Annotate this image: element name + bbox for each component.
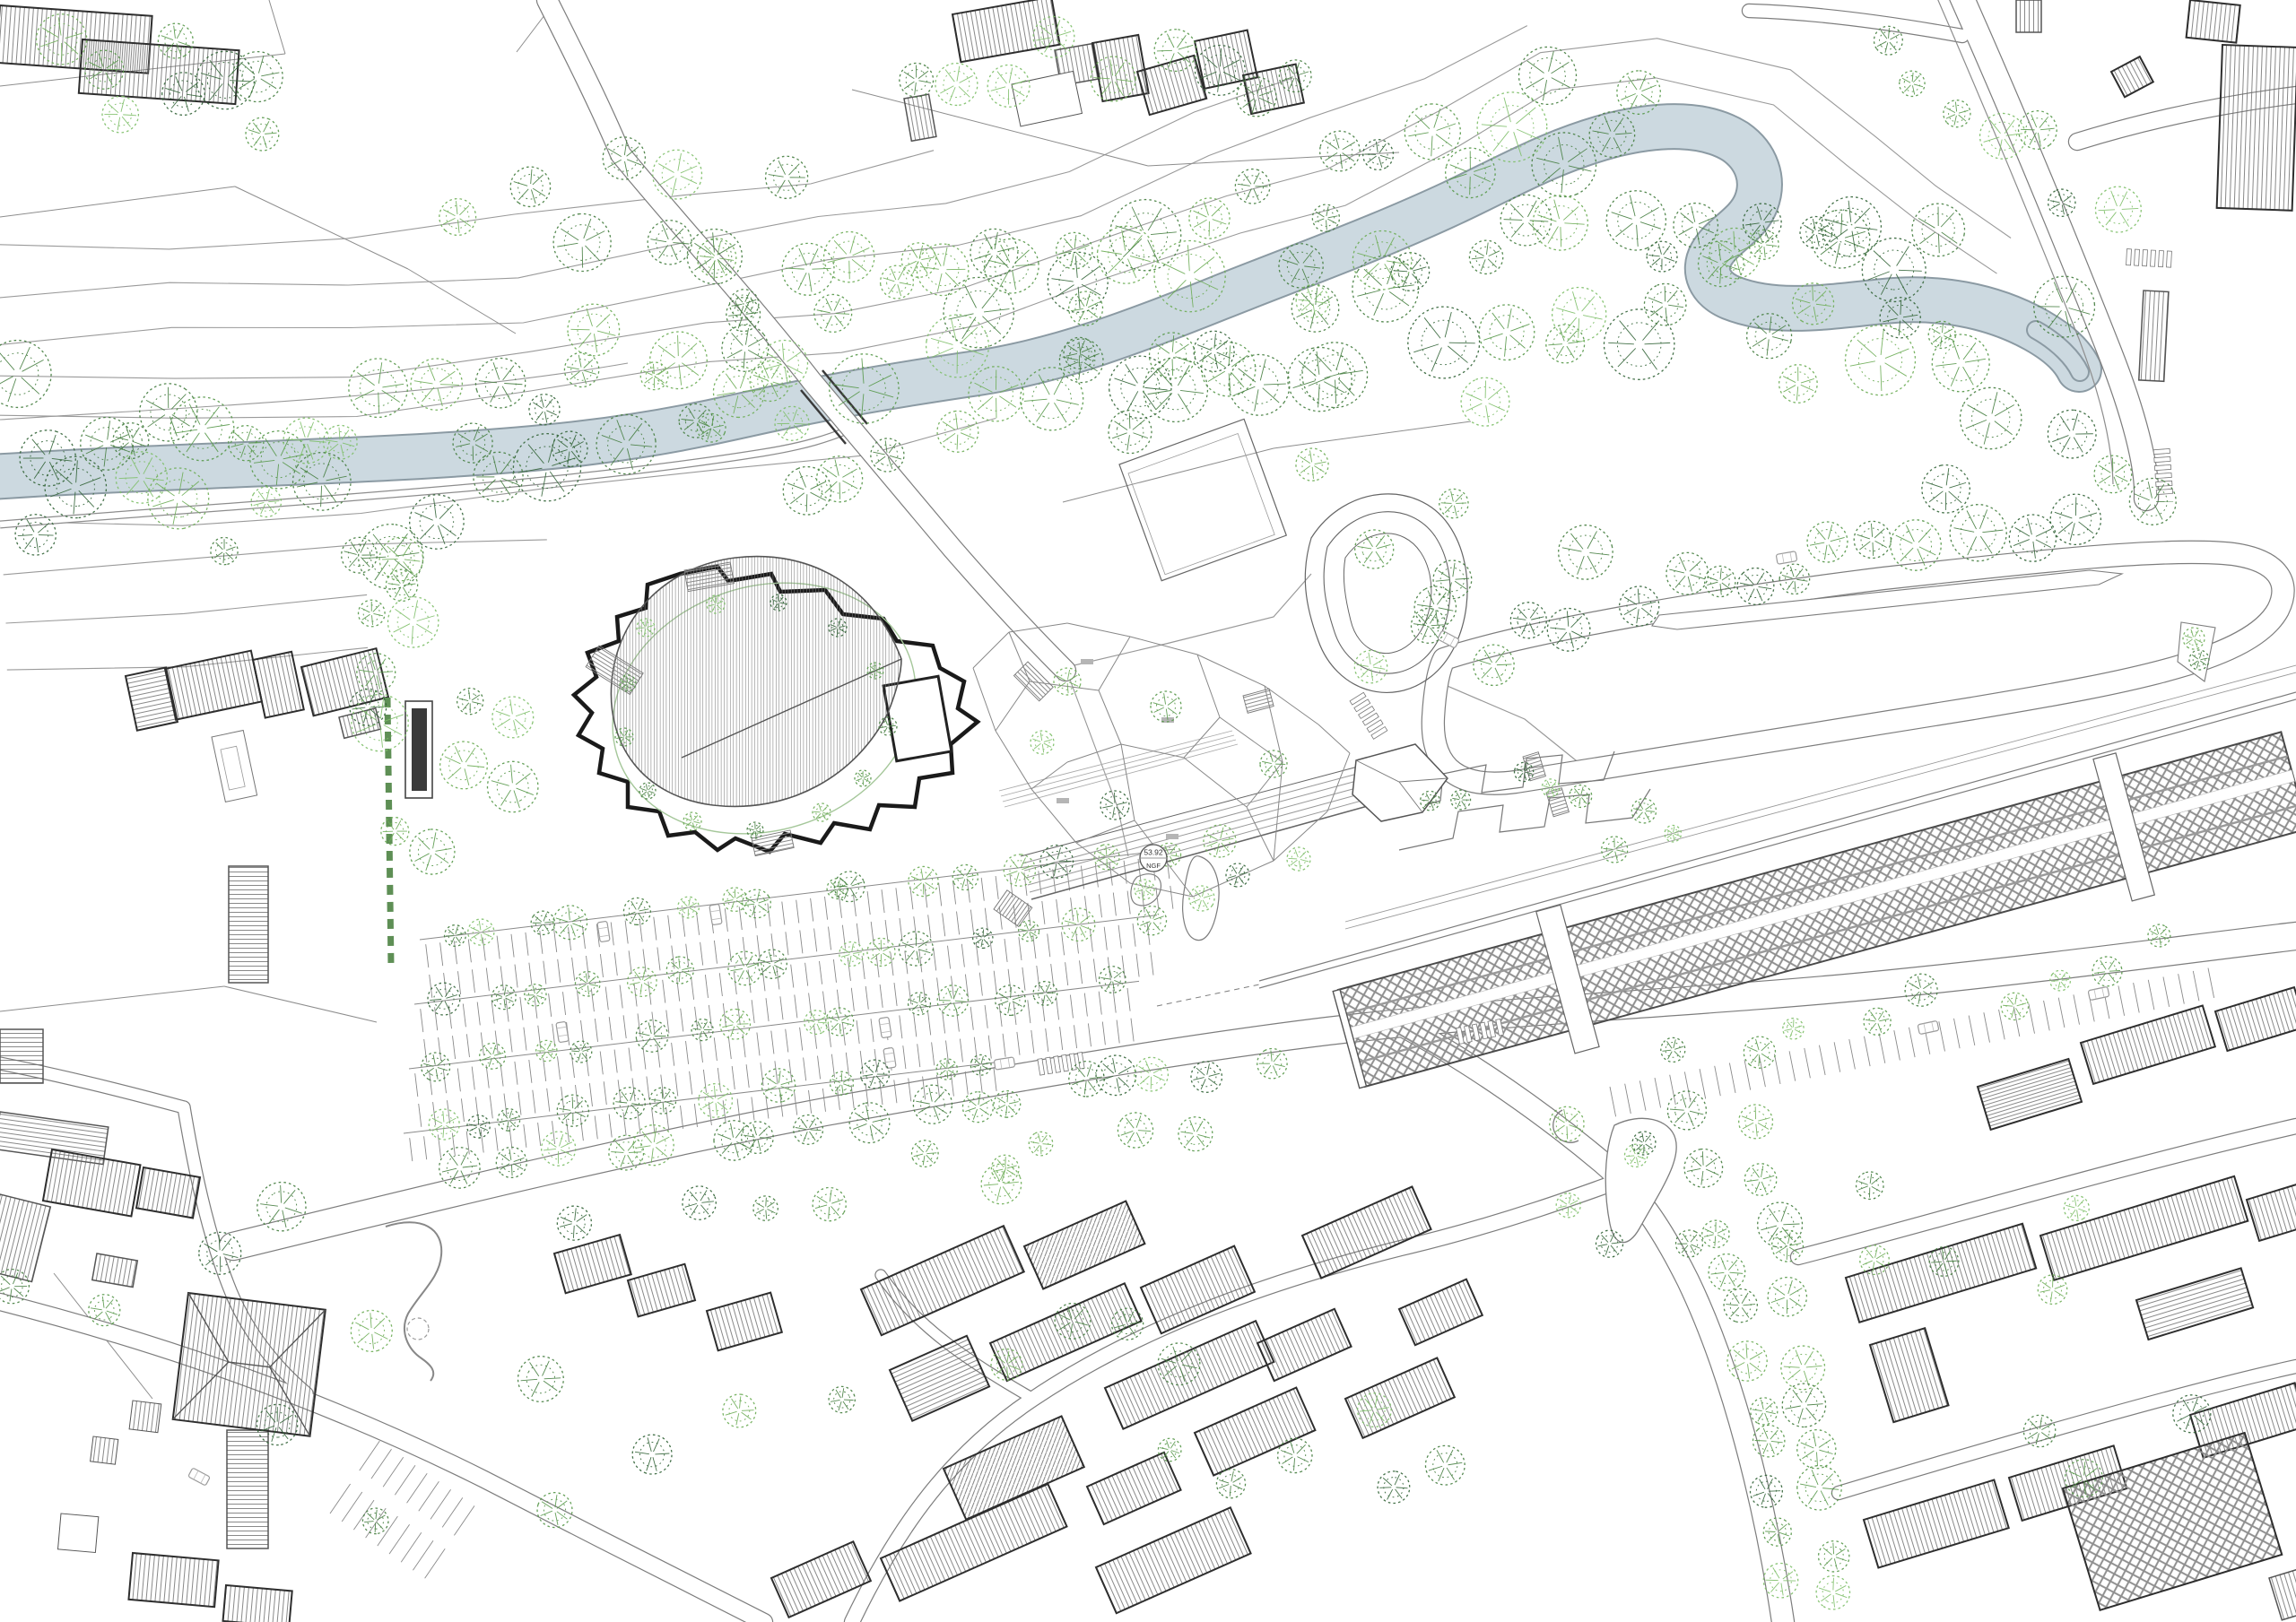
building [229, 866, 268, 983]
level-value: 53.92 [1144, 848, 1163, 857]
building [129, 1401, 161, 1433]
building [2217, 45, 2296, 211]
building [2016, 0, 2041, 32]
level-marker: 53.92 NGF [1140, 845, 1167, 872]
building [58, 1514, 99, 1553]
bench [1166, 834, 1178, 839]
building [136, 1167, 200, 1218]
building [91, 1436, 118, 1464]
building [2187, 0, 2240, 43]
water-feature [412, 708, 427, 791]
site-plan-canvas: 53.92 NGF [0, 0, 2296, 1622]
building [0, 1029, 43, 1083]
building [227, 1430, 268, 1548]
bench [1081, 659, 1093, 664]
building [223, 1585, 292, 1622]
site-plan-page: 53.92 NGF [0, 0, 2296, 1622]
building [128, 1553, 218, 1607]
level-datum: NGF [1146, 862, 1161, 870]
bench [1057, 798, 1069, 803]
building [2139, 291, 2169, 381]
